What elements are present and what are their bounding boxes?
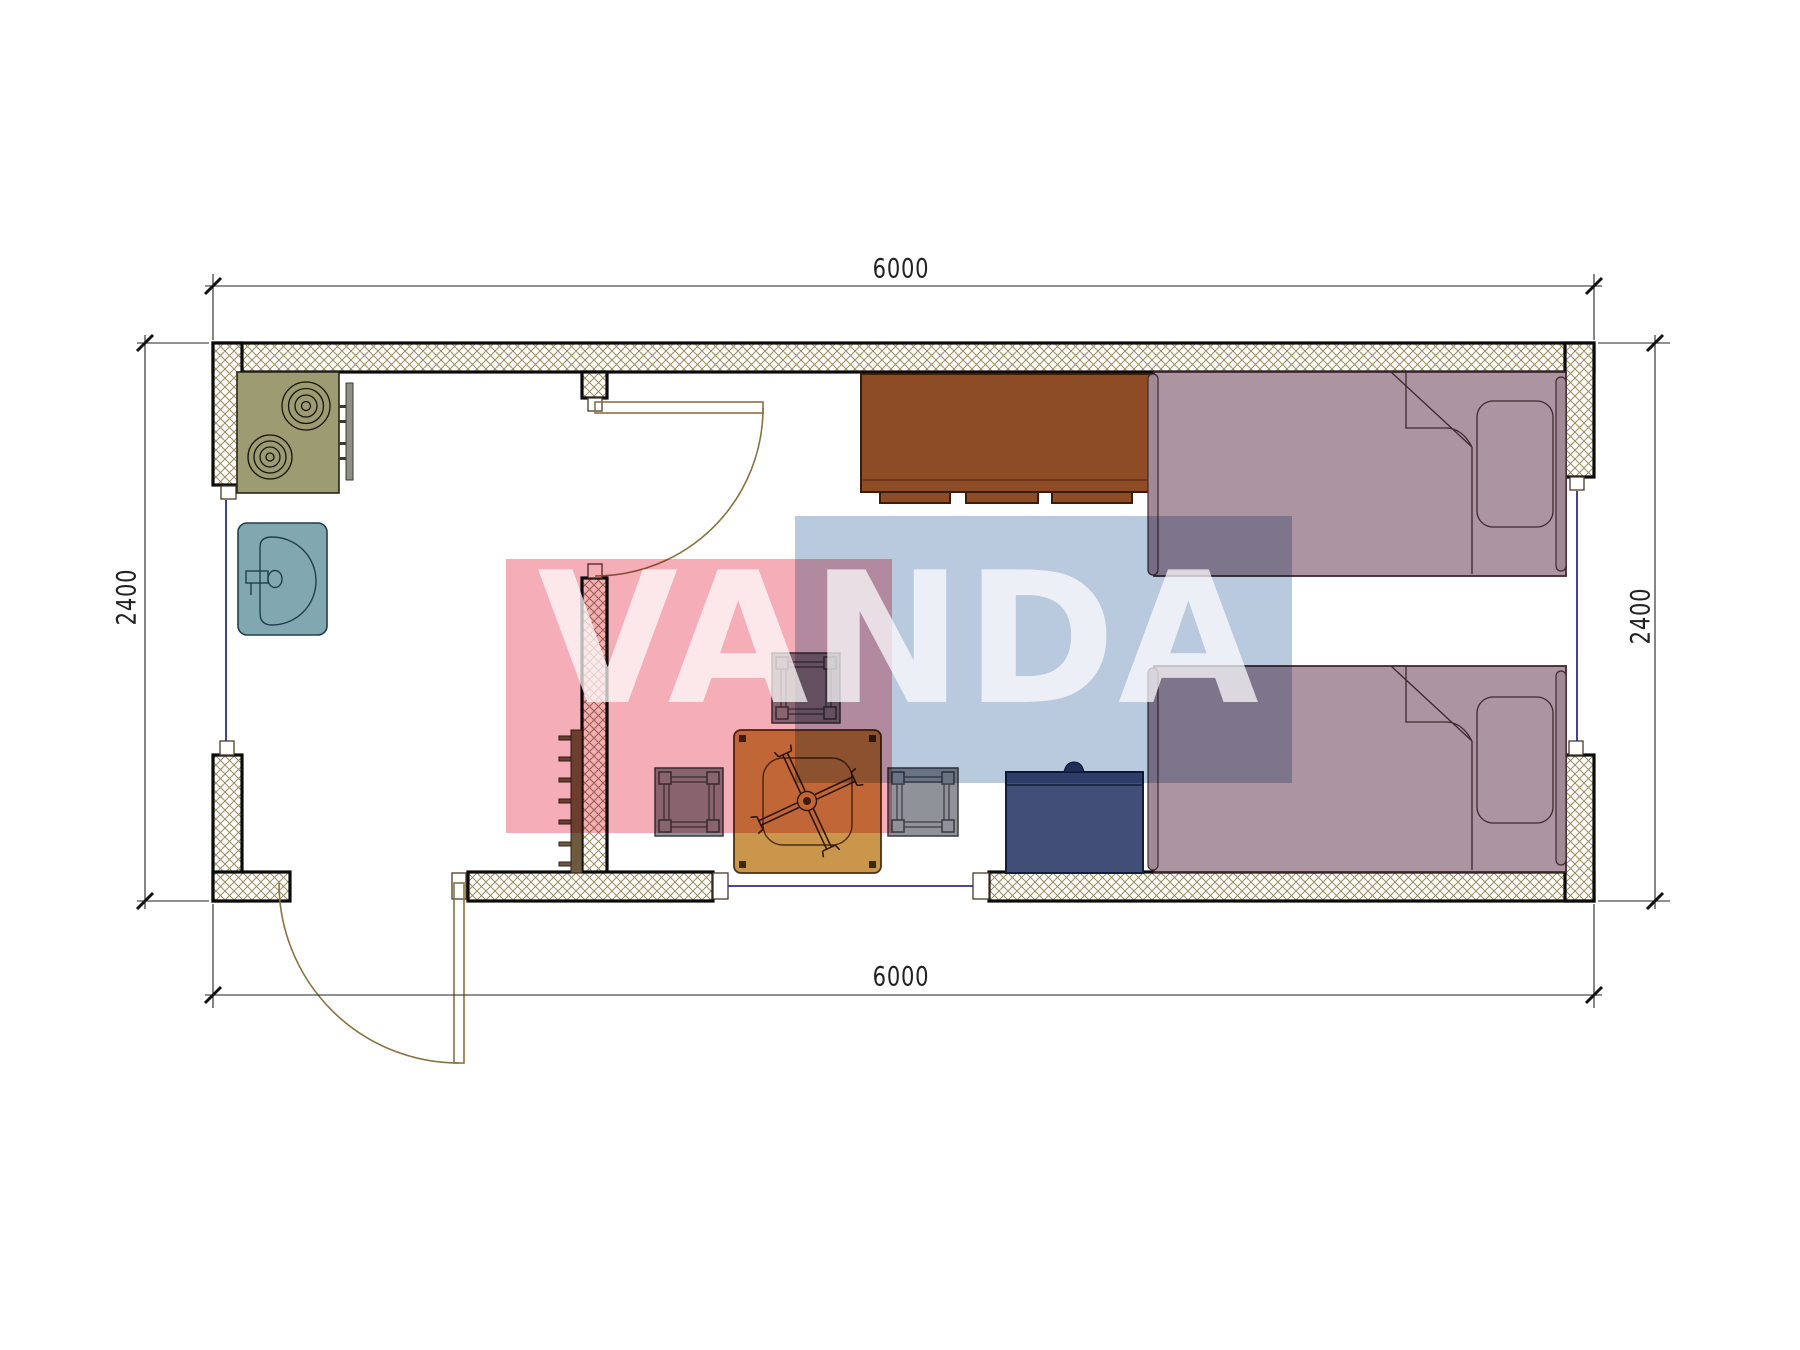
floor-plan-canvas: 6000 6000 2400 2400 VANDA	[0, 0, 1800, 1350]
wardrobe-cabinet	[861, 374, 1150, 503]
wall-stub-interior-door	[582, 372, 607, 398]
wall-right-upper	[1565, 343, 1594, 477]
interior-door-leaf	[595, 402, 763, 413]
dimension-label-left: 2400	[112, 569, 143, 626]
stove-handle-ticks	[339, 405, 346, 460]
stove	[237, 372, 353, 493]
bed-top-headboard	[1556, 377, 1566, 571]
wall-bottom-segment-b	[989, 872, 1594, 901]
wall-bottom-segment-a	[468, 872, 713, 901]
wall-top	[213, 343, 1594, 372]
dimension-label-bottom: 6000	[873, 962, 930, 993]
bed-bottom-headboard	[1556, 671, 1566, 865]
sink	[238, 523, 327, 635]
entrance-door	[279, 883, 464, 1063]
dimension-label-right: 2400	[1626, 588, 1657, 645]
entrance-door-swing-arc	[279, 883, 459, 1063]
entrance-door-leaf	[454, 883, 464, 1063]
wall-right-lower-stub	[1565, 755, 1594, 901]
stove-handle-bar	[346, 383, 353, 480]
dimension-label-top: 6000	[873, 254, 930, 285]
watermark-text: VANDA	[537, 548, 1261, 730]
